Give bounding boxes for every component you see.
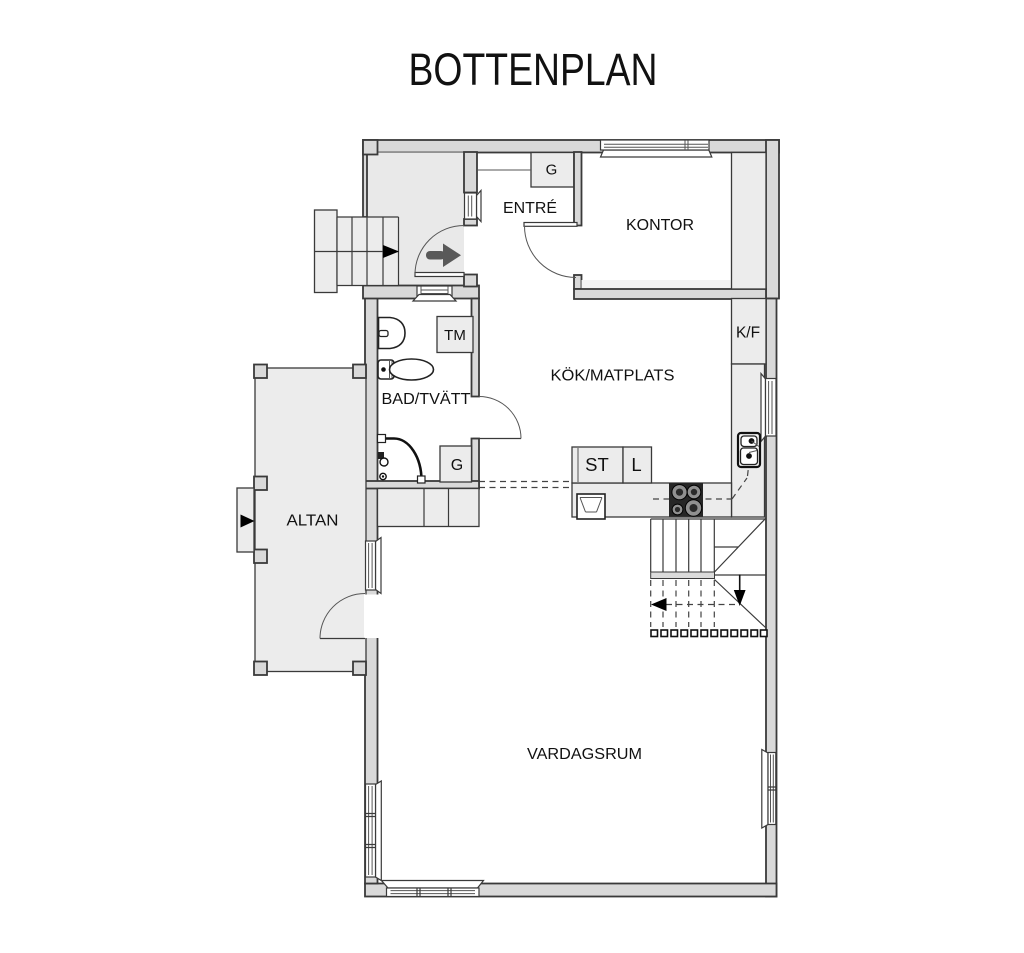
svg-text:BAD/TVÄTT: BAD/TVÄTT <box>382 390 471 408</box>
svg-text:ST: ST <box>585 454 609 475</box>
svg-text:VARDAGSRUM: VARDAGSRUM <box>527 746 642 763</box>
svg-text:ALTAN: ALTAN <box>287 513 339 530</box>
svg-text:BOTTENPLAN: BOTTENPLAN <box>409 44 658 95</box>
svg-text:KÖK/MATPLATS: KÖK/MATPLATS <box>551 367 675 385</box>
svg-text:KONTOR: KONTOR <box>626 217 694 234</box>
svg-text:K/F: K/F <box>736 325 760 342</box>
svg-text:TM: TM <box>444 327 466 344</box>
svg-text:ENTRÉ: ENTRÉ <box>503 198 557 217</box>
svg-text:G: G <box>451 457 463 474</box>
svg-text:G: G <box>546 162 558 179</box>
svg-text:L: L <box>631 454 641 475</box>
